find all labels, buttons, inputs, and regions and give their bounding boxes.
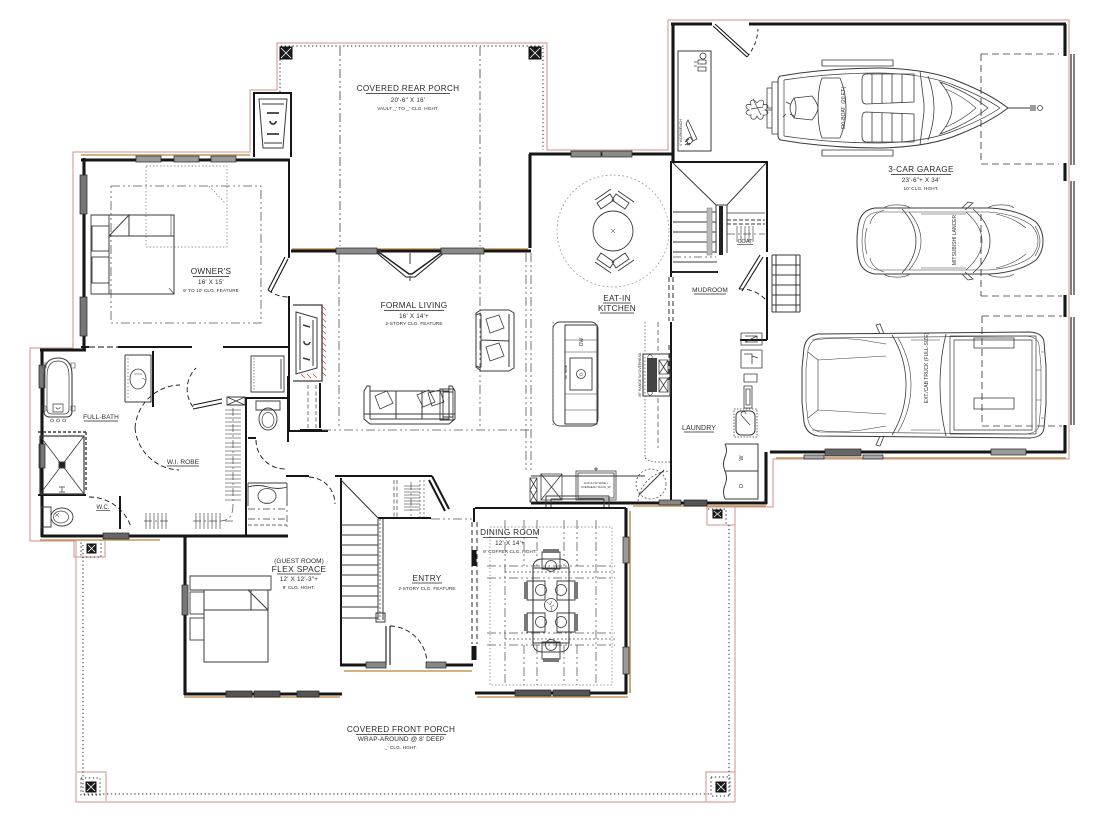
svg-text:EXT./CAB TRUCK (FULL-SIZE): EXT./CAB TRUCK (FULL-SIZE) [924,332,930,403]
svg-text:MUDROOM: MUDROOM [692,287,728,294]
svg-text:9' TO 10' CLG. FEATURE: 9' TO 10' CLG. FEATURE [183,288,239,293]
svg-text:12' X 12'-3"+: 12' X 12'-3"+ [280,576,318,583]
svg-text:COAT: COAT [738,239,754,245]
svg-text:EAT-IN: EAT-IN [603,294,631,303]
svg-text:SKI-BOAT (20 FT.): SKI-BOAT (20 FT.) [841,86,847,129]
svg-text:FULL-BATH: FULL-BATH [83,414,119,421]
svg-text:9' COFFER CLG. HGHT.: 9' COFFER CLG. HGHT. [483,549,537,554]
svg-text:36" RANGE W/ OVERHEAD: 36" RANGE W/ OVERHEAD [638,352,642,397]
svg-text:FORMAL LIVING: FORMAL LIVING [381,301,448,310]
svg-text:16' X 15': 16' X 15' [198,279,224,286]
svg-text:10' CLG. HGHT.: 10' CLG. HGHT. [903,186,938,191]
svg-text:16' X 14'+: 16' X 14'+ [399,313,429,320]
svg-text:KITCHEN: KITCHEN [598,304,636,313]
svg-text:12' X 14'+: 12' X 14'+ [495,540,525,547]
svg-text:3-CAR GARAGE: 3-CAR GARAGE [888,165,954,174]
svg-text:COVERED REAR PORCH: COVERED REAR PORCH [357,84,460,93]
svg-text:COVERED FRONT PORCH: COVERED FRONT PORCH [347,725,455,734]
svg-text:O: O [579,372,583,377]
svg-text:2-STORY CLG. FEATURE: 2-STORY CLG. FEATURE [385,321,442,326]
svg-text:_' CLG. HGHT.: _' CLG. HGHT. [384,745,417,750]
svg-text:4' WORKBENCH: 4' WORKBENCH [679,119,683,146]
svg-text:OWNER'S: OWNER'S [191,267,232,276]
svg-text:W.I. ROBE: W.I. ROBE [167,459,200,466]
svg-text:23'-6"+ X 34': 23'-6"+ X 34' [902,177,940,184]
svg-text:LAUNDRY: LAUNDRY [682,425,716,432]
svg-text:D: D [739,484,745,488]
svg-text:W: W [739,455,745,461]
svg-text:VAULT _' TO _' CLG. HGHT.: VAULT _' TO _' CLG. HGHT. [377,106,439,111]
svg-text:36" SINK: 36" SINK [564,364,568,379]
svg-text:DW: DW [579,338,585,347]
svg-text:9' CLG. HGHT.: 9' CLG. HGHT. [283,585,315,590]
svg-text:FLEX SPACE: FLEX SPACE [272,564,327,574]
svg-text:WRAP-AROUND @ 8' DEEP: WRAP-AROUND @ 8' DEEP [358,736,445,743]
svg-text:W.C.: W.C. [97,505,110,511]
svg-text:OVERHEAD "RACK_W": OVERHEAD "RACK_W" [581,485,611,489]
svg-text:MITSUBISHI LANCER: MITSUBISHI LANCER [952,214,958,265]
svg-text:ENTRY: ENTRY [412,574,441,583]
svg-text:20'-6" X 16': 20'-6" X 16' [391,97,425,104]
svg-text:2-STORY CLG. FEATURE: 2-STORY CLG. FEATURE [398,586,455,591]
svg-text:DINING ROOM: DINING ROOM [480,528,540,537]
